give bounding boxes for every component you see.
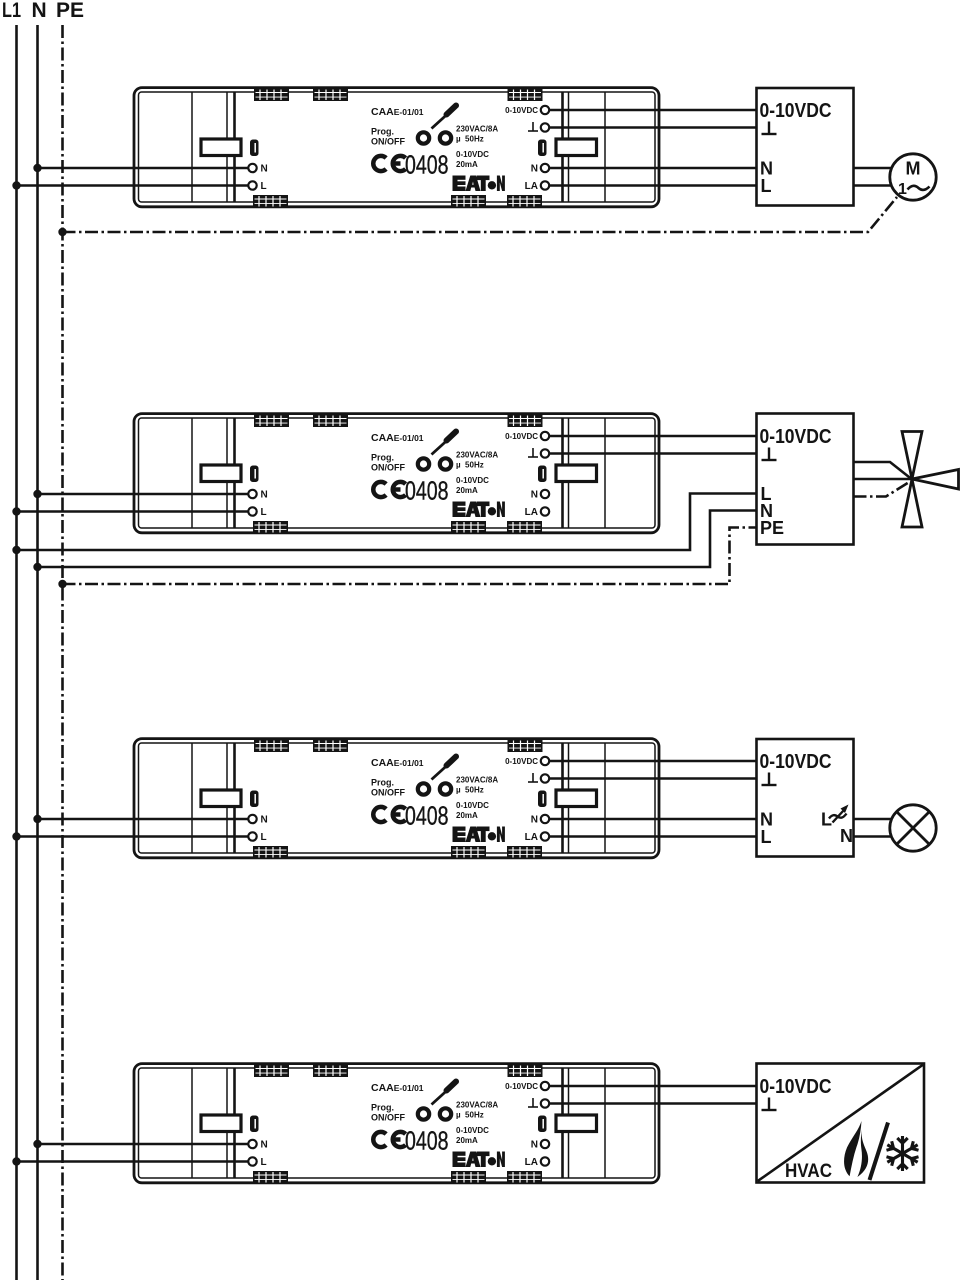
svg-text:PE: PE: [56, 0, 84, 22]
svg-text:0-10VDC: 0-10VDC: [760, 1076, 832, 1098]
svg-text:LA: LA: [525, 181, 538, 192]
svg-text:M: M: [906, 159, 921, 179]
svg-text:0-10VDC: 0-10VDC: [760, 100, 832, 122]
svg-text:L1: L1: [2, 0, 21, 22]
svg-text:ON/OFF: ON/OFF: [371, 137, 405, 147]
svg-text:L: L: [761, 176, 772, 196]
svg-text:µ 50Hz: µ 50Hz: [456, 135, 484, 144]
svg-text:CAAE-01/01: CAAE-01/01: [371, 106, 424, 118]
svg-text:Prog.: Prog.: [371, 127, 394, 137]
svg-text:0-10VDC: 0-10VDC: [456, 150, 489, 159]
svg-text:L: L: [821, 810, 832, 830]
svg-text:20mA: 20mA: [456, 160, 478, 169]
svg-text:0408: 0408: [405, 150, 449, 180]
svg-text:0-10VDC: 0-10VDC: [505, 106, 538, 115]
svg-text:0-10VDC: 0-10VDC: [760, 426, 832, 448]
svg-text:HVAC: HVAC: [785, 1161, 832, 1182]
svg-text:N: N: [261, 164, 268, 175]
svg-text:230VAC/8A: 230VAC/8A: [456, 125, 498, 134]
svg-text:N: N: [531, 164, 538, 175]
svg-text:L: L: [261, 181, 267, 192]
svg-text:N: N: [840, 826, 853, 846]
svg-text:1: 1: [898, 181, 907, 198]
svg-text:N: N: [32, 0, 47, 22]
svg-text:PE: PE: [760, 518, 784, 538]
